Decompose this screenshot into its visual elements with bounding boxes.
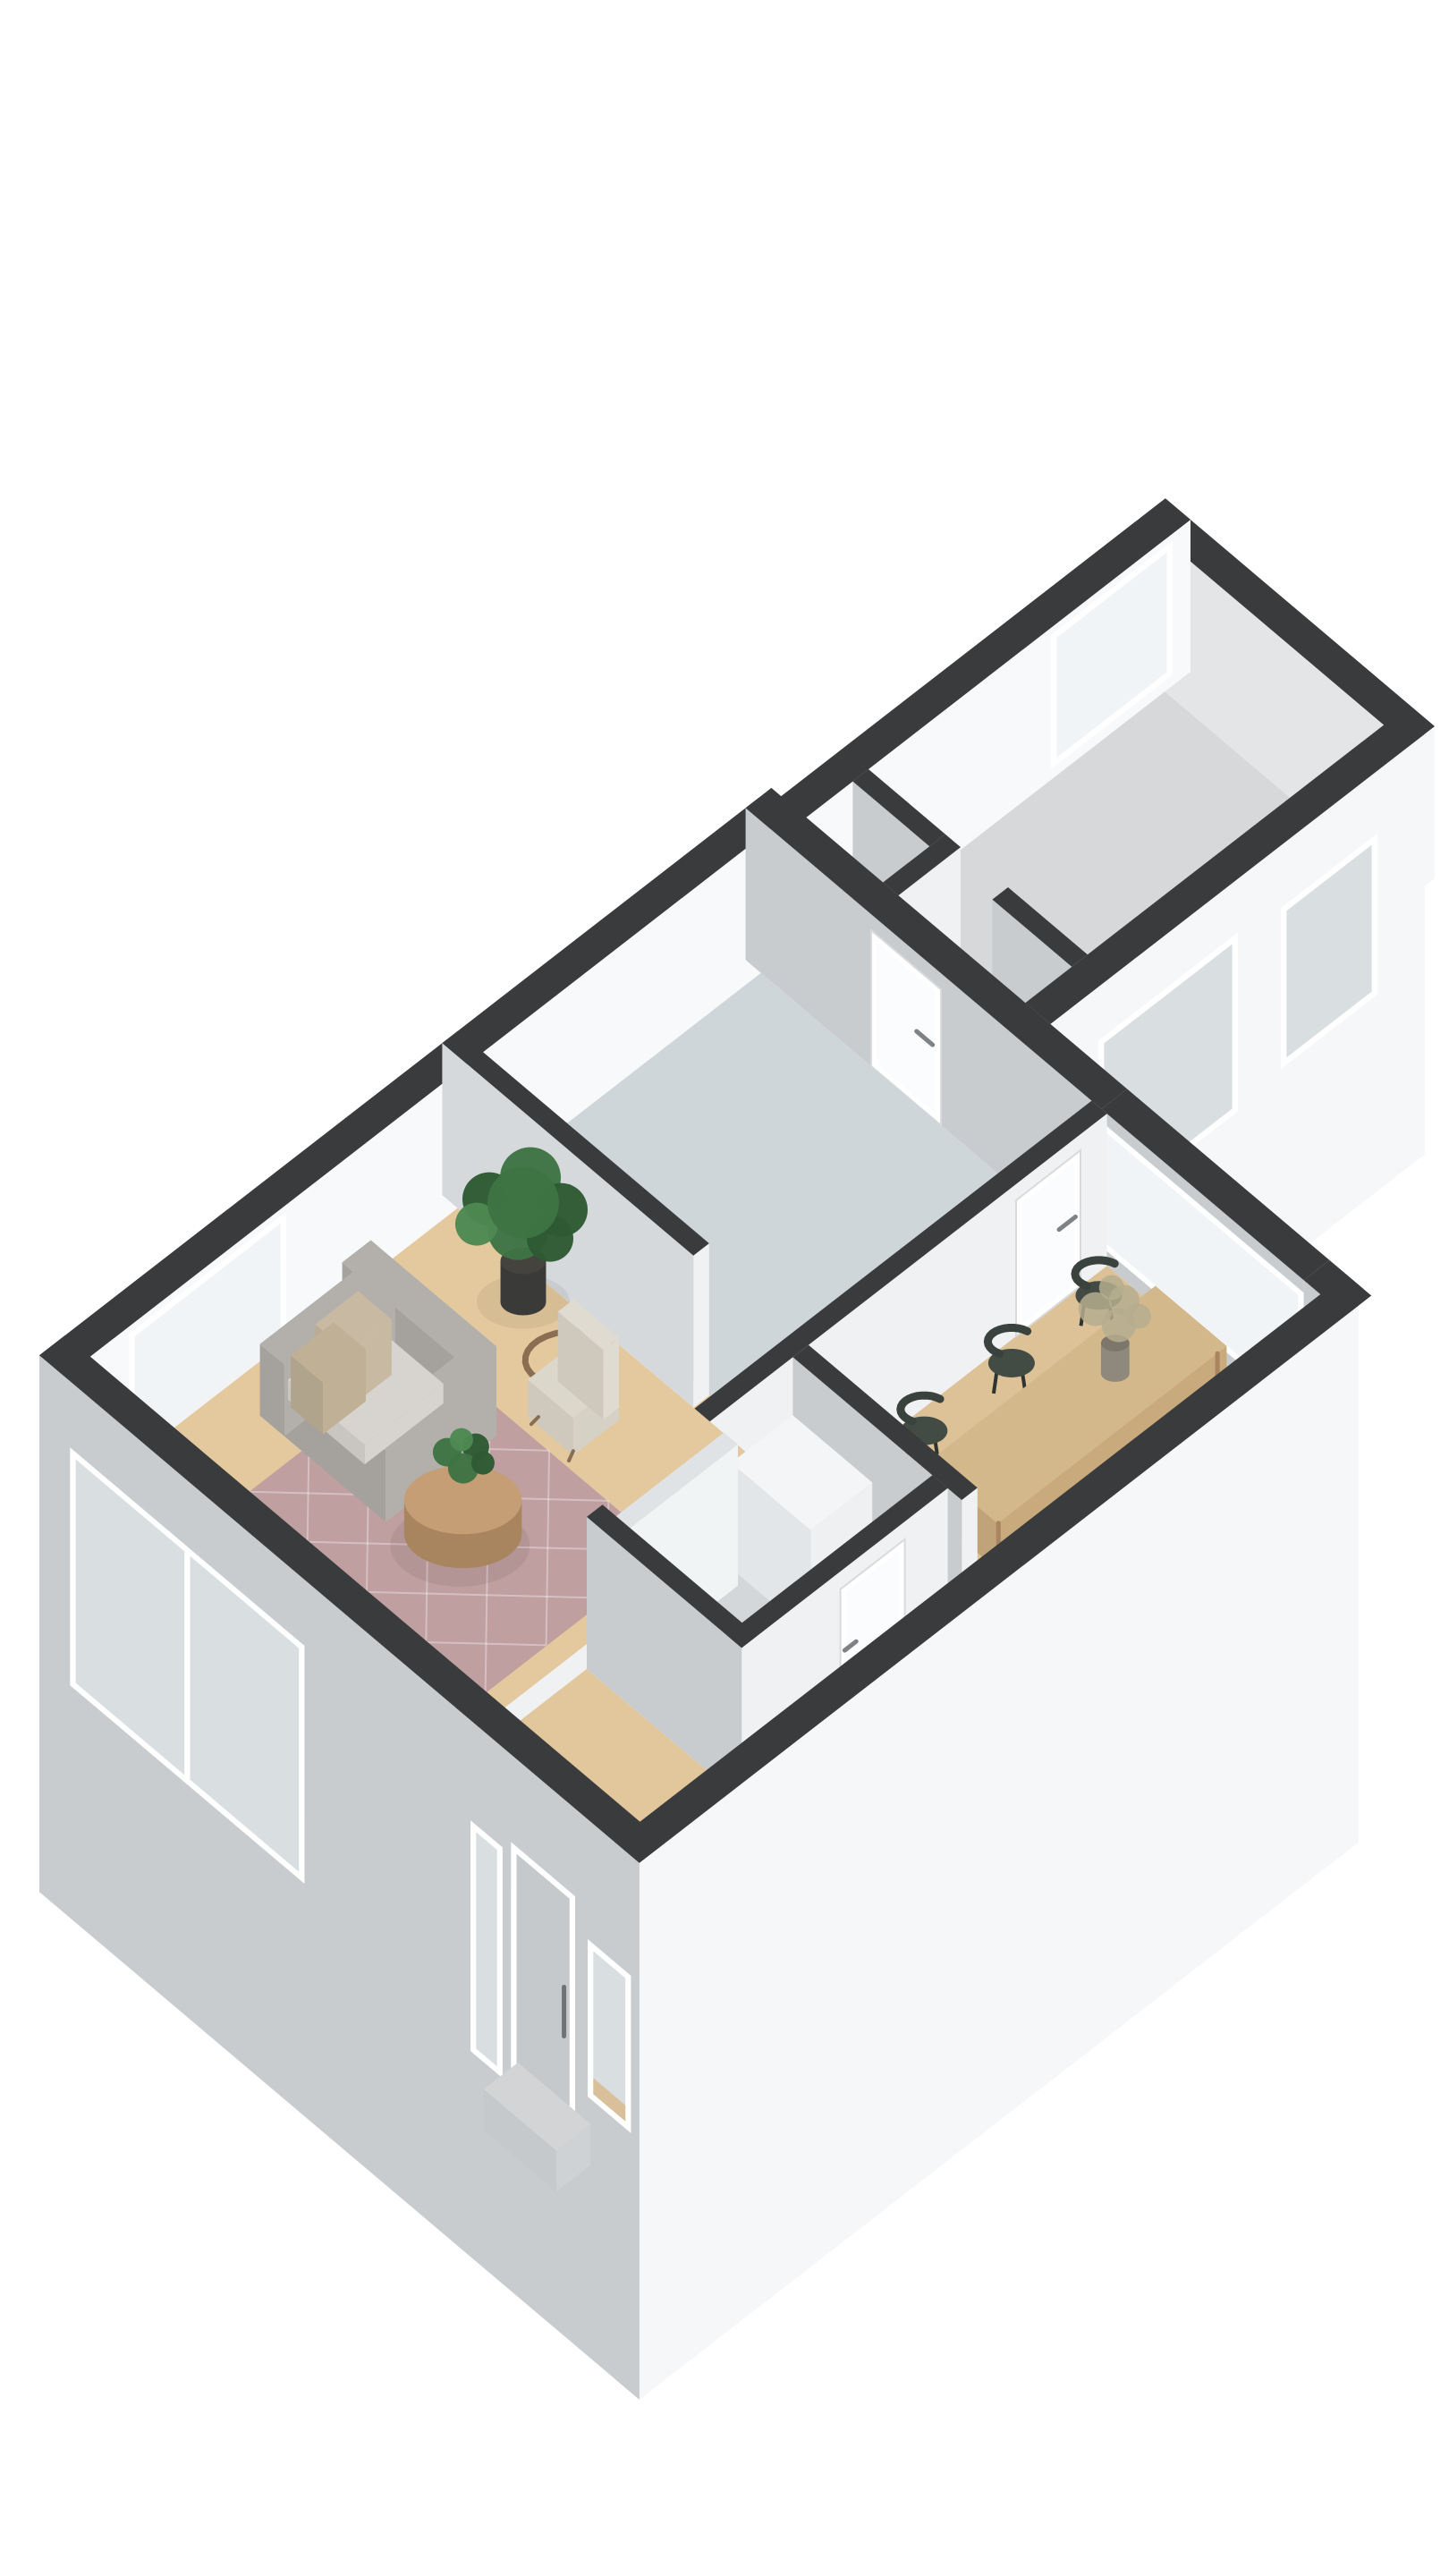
floorplan-scene: [39, 498, 1435, 2400]
floorplan-3d-view: [0, 0, 1449, 2576]
page: [0, 0, 1449, 2576]
flower-vase: [1101, 1335, 1130, 1382]
entry-sidelight-window: [470, 1820, 503, 2078]
